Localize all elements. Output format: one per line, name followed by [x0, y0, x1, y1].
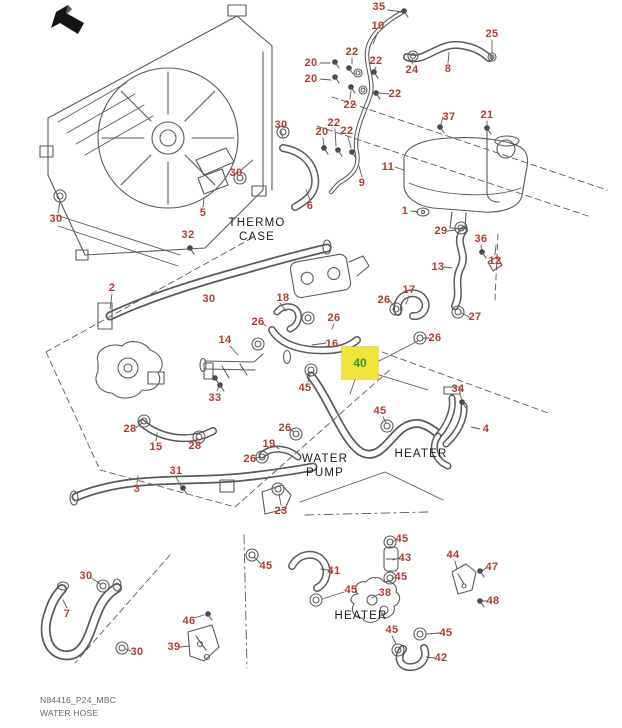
- part-label-35[interactable]: 35: [372, 1, 385, 13]
- part-label-22[interactable]: 22: [327, 117, 340, 129]
- part-label-41[interactable]: 41: [327, 565, 340, 577]
- part-label-26[interactable]: 26: [243, 453, 256, 465]
- part-label-31[interactable]: 31: [169, 465, 182, 477]
- part-label-13[interactable]: 13: [431, 261, 444, 273]
- part-label-5[interactable]: 5: [200, 207, 207, 219]
- part-label-6[interactable]: 6: [307, 200, 314, 212]
- part-label-32[interactable]: 32: [181, 229, 194, 241]
- part-label-30[interactable]: 30: [229, 167, 242, 179]
- part-label-24[interactable]: 24: [405, 64, 418, 76]
- highlighted-part-callout[interactable]: 40: [342, 347, 378, 379]
- part-label-11[interactable]: 11: [382, 161, 394, 173]
- part-label-26[interactable]: 26: [428, 332, 441, 344]
- part-label-34[interactable]: 34: [451, 383, 464, 395]
- part-label-22[interactable]: 22: [343, 99, 356, 111]
- part-label-12[interactable]: 12: [488, 255, 501, 267]
- part-label-8[interactable]: 8: [445, 63, 452, 75]
- part-label-23[interactable]: 23: [274, 505, 287, 517]
- part-label-26[interactable]: 26: [377, 294, 390, 306]
- part-label-22[interactable]: 22: [340, 125, 353, 137]
- part-label-44[interactable]: 44: [446, 549, 459, 561]
- part-label-48[interactable]: 48: [486, 595, 499, 607]
- part-label-26[interactable]: 26: [251, 316, 264, 328]
- part-label-45[interactable]: 45: [385, 624, 398, 636]
- part-label-22[interactable]: 22: [388, 88, 401, 100]
- part-label-37[interactable]: 37: [442, 111, 455, 123]
- part-label-26[interactable]: 26: [278, 422, 291, 434]
- part-label-45[interactable]: 45: [259, 560, 272, 572]
- part-label-36[interactable]: 36: [474, 233, 487, 245]
- part-label-15[interactable]: 15: [149, 441, 162, 453]
- part-label-20[interactable]: 20: [304, 57, 317, 69]
- part-label-20[interactable]: 20: [315, 126, 328, 138]
- part-label-30[interactable]: 30: [130, 646, 143, 658]
- part-label-10[interactable]: 10: [371, 20, 384, 32]
- parts-diagram-page: 3510252220222482022223721222022303056911…: [0, 0, 622, 728]
- part-label-45[interactable]: 45: [373, 405, 386, 417]
- part-label-17[interactable]: 17: [402, 284, 415, 296]
- part-label-1[interactable]: 1: [402, 205, 409, 217]
- part-label-9[interactable]: 9: [359, 177, 366, 189]
- component-text: HEATER: [395, 448, 448, 462]
- part-label-47[interactable]: 47: [485, 561, 498, 573]
- part-label-7[interactable]: 7: [64, 608, 71, 620]
- footer-drawing-code: N84416_P24_MBC: [40, 694, 116, 707]
- part-label-45[interactable]: 45: [439, 627, 452, 639]
- part-label-22[interactable]: 22: [345, 46, 358, 58]
- part-labels-layer: 3510252220222482022223721222022303056911…: [0, 0, 622, 728]
- part-label-3[interactable]: 3: [134, 483, 141, 495]
- part-label-33[interactable]: 33: [208, 392, 221, 404]
- part-label-19[interactable]: 19: [262, 438, 275, 450]
- part-label-25[interactable]: 25: [485, 28, 498, 40]
- part-label-45[interactable]: 45: [344, 584, 357, 596]
- part-label-27[interactable]: 27: [468, 311, 481, 323]
- part-label-39[interactable]: 39: [167, 641, 180, 653]
- part-label-21[interactable]: 21: [480, 109, 493, 121]
- part-label-16[interactable]: 16: [325, 338, 338, 350]
- part-label-20[interactable]: 20: [304, 73, 317, 85]
- part-label-2[interactable]: 2: [109, 282, 116, 294]
- part-label-30[interactable]: 30: [274, 119, 287, 131]
- part-label-14[interactable]: 14: [218, 334, 231, 346]
- drawing-footer: N84416_P24_MBC WATER HOSE: [40, 694, 116, 720]
- part-label-46[interactable]: 46: [182, 615, 195, 627]
- part-label-4[interactable]: 4: [483, 423, 490, 435]
- part-label-45[interactable]: 45: [394, 571, 407, 583]
- part-label-43[interactable]: 43: [398, 552, 411, 564]
- part-label-29[interactable]: 29: [434, 225, 447, 237]
- part-label-30[interactable]: 30: [202, 293, 215, 305]
- component-text: WATER PUMP: [302, 453, 348, 481]
- component-text: HEATER: [335, 610, 388, 624]
- part-label-38[interactable]: 38: [378, 587, 391, 599]
- part-label-45[interactable]: 45: [395, 533, 408, 545]
- part-label-18[interactable]: 18: [276, 292, 289, 304]
- part-label-45[interactable]: 45: [298, 382, 311, 394]
- part-label-28[interactable]: 28: [188, 440, 201, 452]
- part-label-22[interactable]: 22: [369, 55, 382, 67]
- part-label-28[interactable]: 28: [123, 423, 136, 435]
- part-label-30[interactable]: 30: [49, 213, 62, 225]
- footer-drawing-title: WATER HOSE: [40, 707, 116, 720]
- part-label-30[interactable]: 30: [79, 570, 92, 582]
- component-text: THERMO CASE: [228, 217, 285, 245]
- part-label-42[interactable]: 42: [434, 652, 447, 664]
- part-label-26[interactable]: 26: [327, 312, 340, 324]
